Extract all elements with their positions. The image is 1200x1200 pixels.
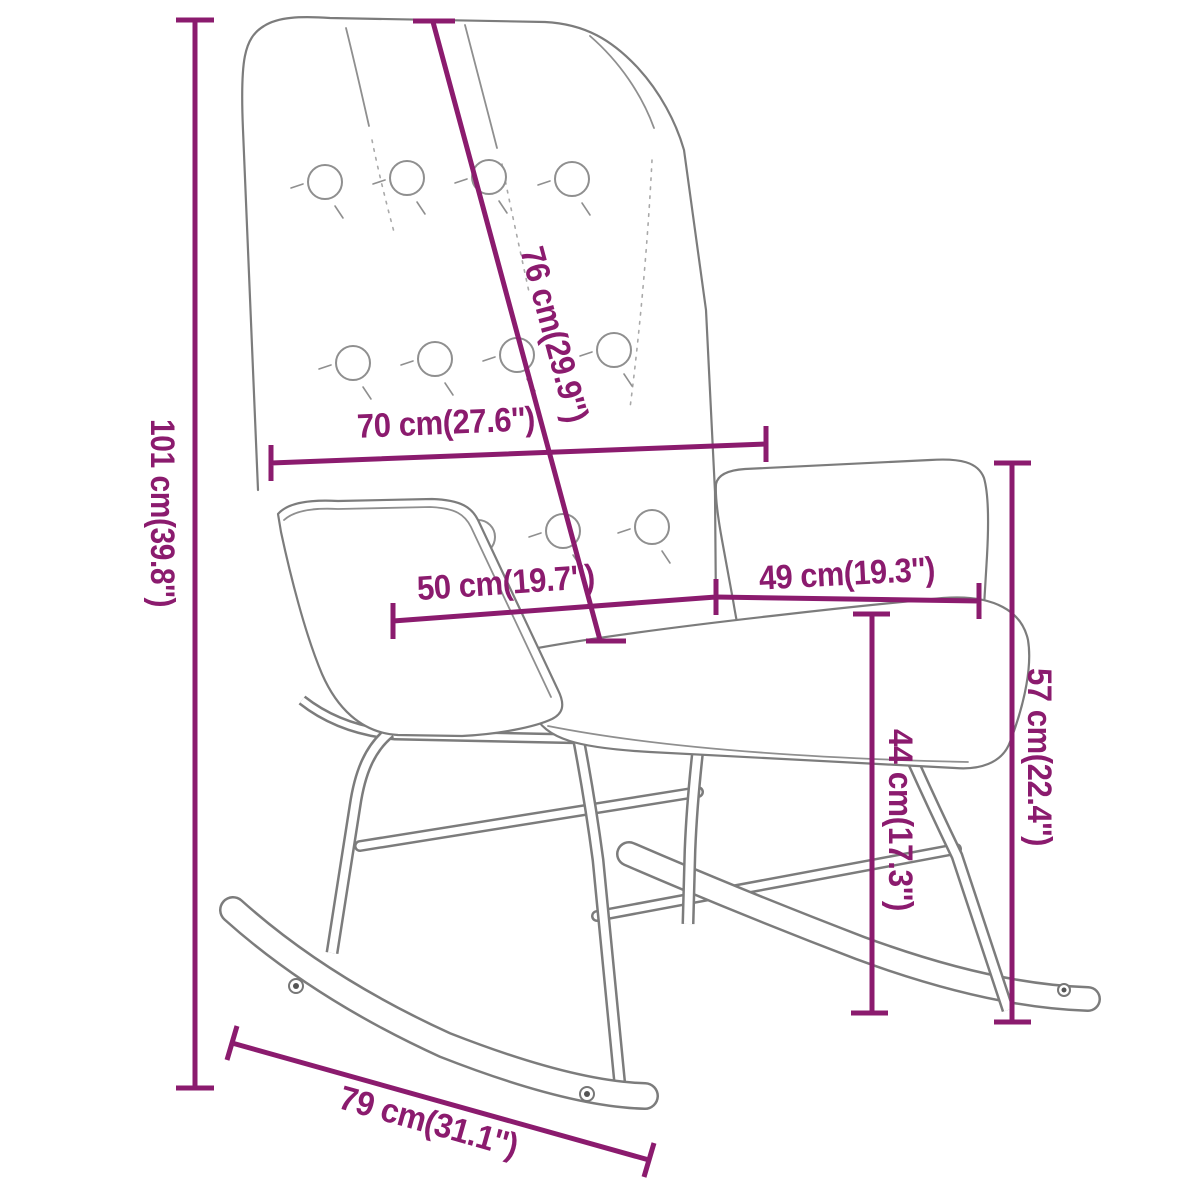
- dim-seat-height-label: 44 cm(17.3''): [881, 729, 919, 911]
- dim-armrest-height-label: 57 cm(22.4''): [1020, 668, 1058, 846]
- dim-backrest-width-label: 70 cm(27.6''): [356, 400, 535, 446]
- rocking-chair-dimension-diagram: 101 cm(39.8'') 76 cm(29.9'') 70 cm(27.6'…: [0, 0, 1200, 1200]
- rocker-screw: [1058, 984, 1070, 996]
- rocker-screw: [289, 979, 303, 993]
- rocker-screw: [580, 1087, 594, 1101]
- dim-overall-height-label: 101 cm(39.8''): [143, 419, 181, 607]
- dimension-diagram-stage: 101 cm(39.8'') 76 cm(29.9'') 70 cm(27.6'…: [0, 0, 1200, 1200]
